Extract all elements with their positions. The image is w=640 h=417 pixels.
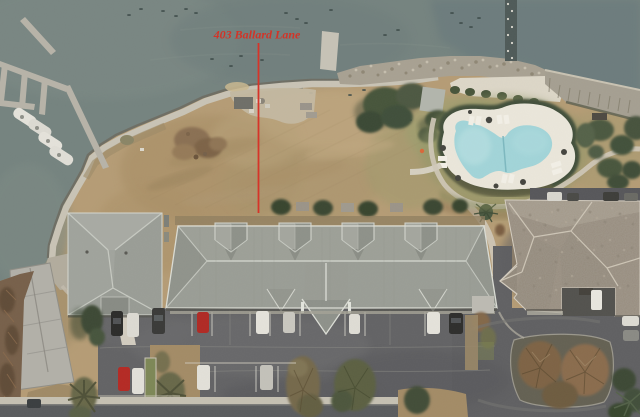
svg-text:403 Ballard Lane: 403 Ballard Lane [213, 28, 301, 42]
